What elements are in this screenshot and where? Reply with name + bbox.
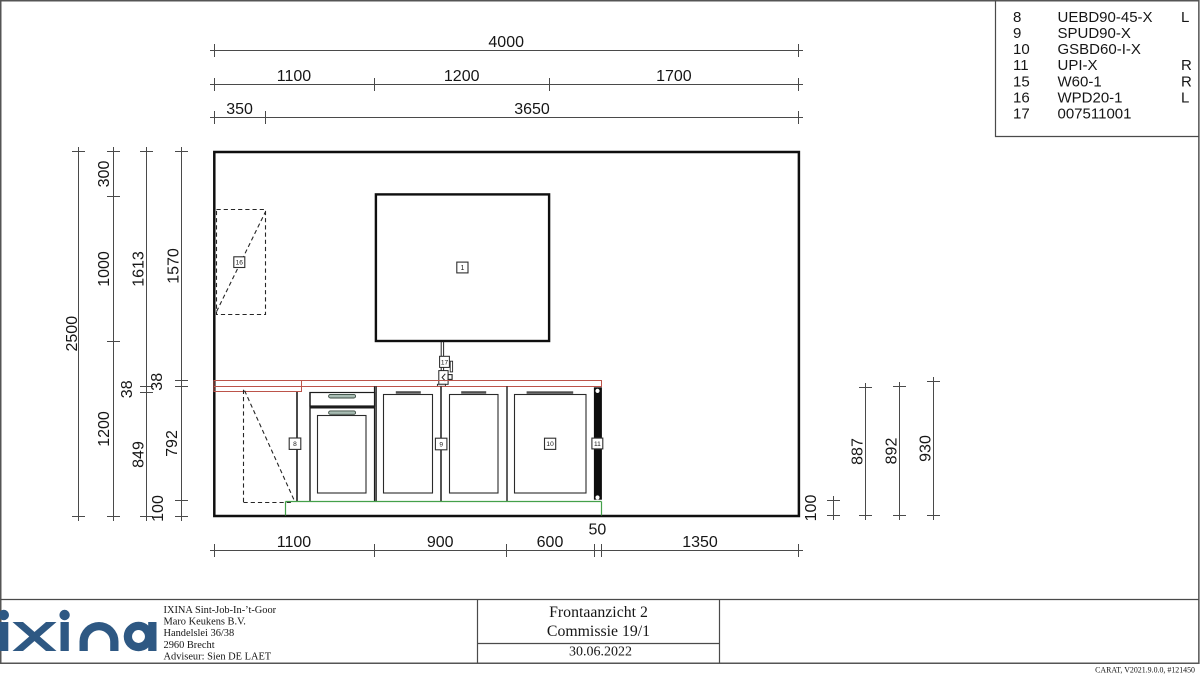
- svg-text:Maro Keukens B.V.: Maro Keukens B.V.: [164, 617, 246, 628]
- svg-text:IXINA Sint-Job-In-’t-Goor: IXINA Sint-Job-In-’t-Goor: [164, 605, 277, 616]
- svg-text:930: 930: [918, 435, 935, 462]
- svg-text:8: 8: [293, 441, 297, 448]
- svg-text:1100: 1100: [277, 534, 312, 551]
- svg-text:792: 792: [164, 430, 181, 457]
- svg-text:11: 11: [594, 441, 601, 448]
- svg-text:887: 887: [850, 438, 867, 465]
- svg-text:1000: 1000: [96, 251, 113, 287]
- svg-text:900: 900: [427, 534, 454, 551]
- svg-text:892: 892: [884, 438, 901, 465]
- svg-text:8: 8: [1013, 9, 1021, 26]
- svg-text:10: 10: [546, 441, 554, 448]
- svg-text:L: L: [1181, 89, 1189, 106]
- svg-text:UEBD90-45-X: UEBD90-45-X: [1058, 9, 1153, 26]
- svg-text:1200: 1200: [444, 68, 480, 85]
- svg-text:600: 600: [537, 534, 564, 551]
- svg-text:1200: 1200: [96, 411, 113, 447]
- svg-text:11: 11: [1013, 57, 1029, 74]
- svg-text:R: R: [1181, 73, 1192, 90]
- svg-text:Commissie 19/1: Commissie 19/1: [547, 623, 650, 640]
- svg-text:1613: 1613: [131, 251, 148, 287]
- svg-text:SPUD90-X: SPUD90-X: [1058, 25, 1131, 42]
- svg-text:100: 100: [803, 495, 820, 522]
- svg-text:UPI-X: UPI-X: [1058, 57, 1098, 74]
- svg-text:350: 350: [226, 101, 253, 118]
- svg-text:9: 9: [439, 441, 443, 448]
- svg-text:L: L: [1181, 9, 1189, 26]
- svg-text:W60-1: W60-1: [1058, 73, 1102, 90]
- svg-text:GSBD60-I-X: GSBD60-I-X: [1058, 41, 1141, 58]
- svg-text:100: 100: [150, 495, 167, 522]
- svg-text:2960 Brecht: 2960 Brecht: [164, 640, 215, 651]
- svg-text:10: 10: [1013, 41, 1030, 58]
- svg-text:R: R: [1181, 57, 1192, 74]
- svg-text:1: 1: [460, 265, 464, 272]
- svg-text:1700: 1700: [656, 68, 692, 85]
- svg-text:3650: 3650: [514, 101, 550, 118]
- svg-text:30.06.2022: 30.06.2022: [569, 645, 632, 660]
- svg-text:15: 15: [1013, 73, 1030, 90]
- svg-text:Frontaanzicht 2: Frontaanzicht 2: [549, 604, 648, 621]
- svg-text:007511001: 007511001: [1058, 106, 1132, 123]
- svg-text:9: 9: [1013, 25, 1021, 42]
- svg-text:849: 849: [131, 441, 148, 468]
- svg-text:17: 17: [1013, 106, 1030, 123]
- svg-text:38: 38: [149, 373, 166, 391]
- svg-text:4000: 4000: [488, 34, 524, 51]
- svg-text:300: 300: [96, 161, 113, 188]
- svg-text:16: 16: [1013, 89, 1030, 106]
- svg-text:1350: 1350: [682, 534, 718, 551]
- svg-text:17: 17: [441, 360, 449, 367]
- svg-text:1570: 1570: [166, 248, 183, 284]
- svg-text:50: 50: [589, 521, 607, 538]
- svg-text:1100: 1100: [277, 68, 312, 85]
- svg-text:WPD20-1: WPD20-1: [1058, 89, 1123, 106]
- svg-text:38: 38: [119, 380, 136, 398]
- svg-text:16: 16: [236, 260, 244, 267]
- svg-text:Handelslei 36/38: Handelslei 36/38: [164, 628, 235, 639]
- svg-text:2500: 2500: [64, 316, 81, 352]
- svg-text:CARAT, V2021.9.0.0, #121450: CARAT, V2021.9.0.0, #121450: [1095, 665, 1195, 674]
- svg-text:Adviseur: Sien DE LAET: Adviseur: Sien DE LAET: [164, 652, 272, 663]
